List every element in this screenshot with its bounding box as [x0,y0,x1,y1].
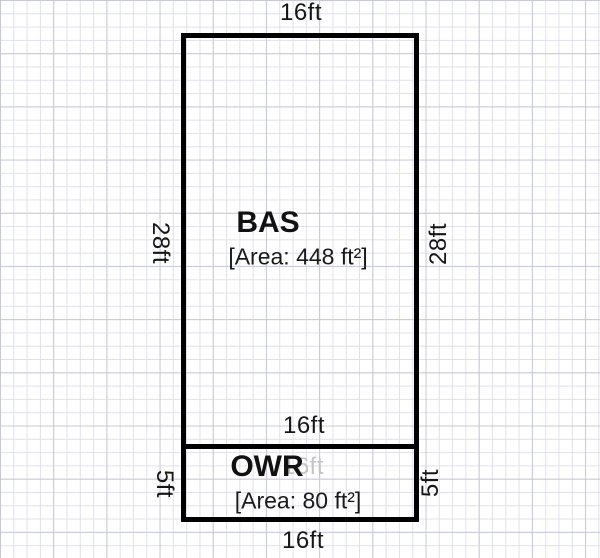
dim-label-bas-left: 28ft [148,222,172,264]
room-area-bas: [Area: 448 ft²] [228,246,367,269]
room-area-owr: [Area: 80 ft²] [235,490,362,513]
dim-label-owr-bottom: 16ft [282,529,324,553]
room-label-owr: OWR [230,452,303,482]
room-label-bas: BAS [236,208,299,238]
dim-label-bas-right: 28ft [427,223,451,265]
sketch-grid-canvas: 16ft 28ft 28ft 16ft BAS [Area: 448 ft²] … [0,0,600,558]
dim-label-bas-top: 16ft [280,1,322,25]
dim-label-owr-right: 5ft [419,469,443,497]
dim-label-bas-bottom: 16ft [283,414,325,438]
room-divider-wall [181,444,419,449]
dim-label-owr-left: 5ft [152,470,176,498]
